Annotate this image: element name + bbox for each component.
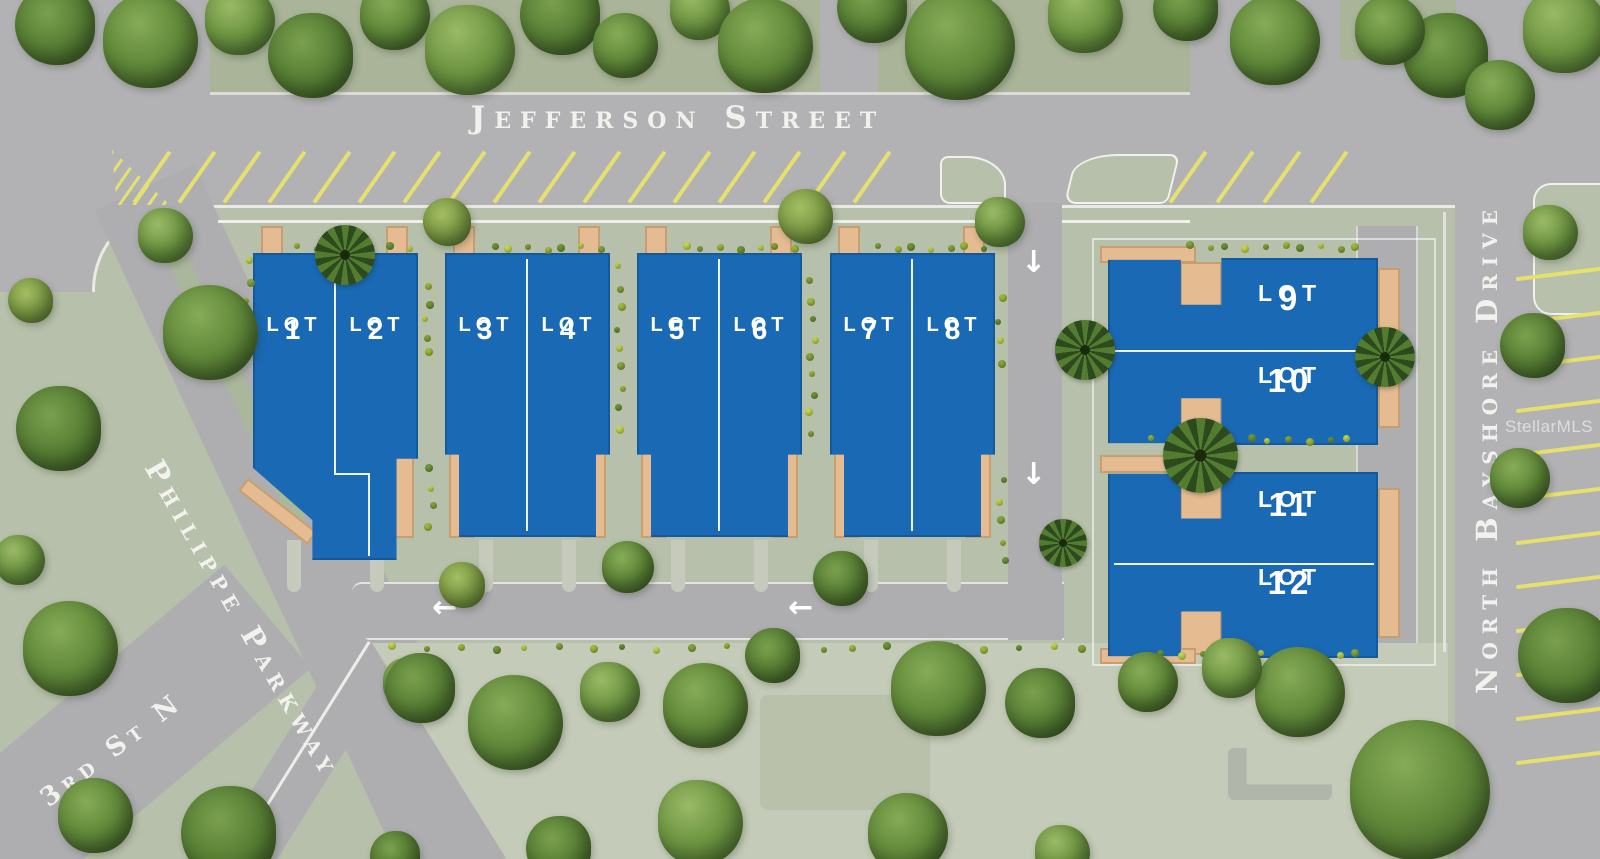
tree-icon: [1523, 205, 1578, 260]
unit-divider: [911, 259, 913, 531]
jefferson-street-label: Jefferson Street: [408, 100, 948, 136]
entry-stub: [838, 226, 860, 256]
parking-stripe-icon: [268, 151, 306, 204]
parking-stripe-icon: [583, 151, 621, 204]
shrub-icon: [246, 257, 253, 264]
tree-icon: [1490, 448, 1550, 508]
shrub-icon: [578, 243, 584, 249]
shrub-icon: [683, 242, 691, 250]
tree-icon: [778, 189, 833, 244]
tree-icon: [813, 551, 868, 606]
shrub-icon: [1186, 241, 1194, 249]
shrub-icon: [425, 464, 433, 472]
shrub-icon: [997, 516, 1005, 524]
shrub-icon: [996, 499, 1003, 506]
tree-icon: [1350, 720, 1490, 859]
shrub-icon: [294, 243, 300, 249]
unit-divider: [334, 259, 336, 473]
shrub-icon: [424, 335, 431, 342]
tree-icon: [1005, 668, 1075, 738]
sidewalk-line: [210, 92, 1190, 95]
shrub-icon: [1221, 243, 1228, 250]
shrub-icon: [1002, 557, 1009, 564]
shrub-icon: [1148, 435, 1154, 441]
unit-divider: [1114, 350, 1374, 352]
shrub-icon: [493, 646, 501, 654]
stellar-mls-watermark: StellarMLS: [1505, 417, 1593, 437]
shrub-icon: [598, 246, 605, 253]
curb-line: [1443, 212, 1446, 652]
unit-divider: [334, 473, 370, 475]
site-plan-map: LOT1 LOT2 LOT3 LOT4 LOT5 LOT6 LOT7 LOT8 …: [0, 0, 1600, 859]
shrub-icon: [1178, 652, 1186, 660]
shrub-icon: [1248, 434, 1256, 442]
tree-icon: [1355, 0, 1425, 65]
sidewalk-line: [218, 220, 1008, 223]
shrub-icon: [247, 279, 255, 287]
shrub-icon: [653, 647, 660, 654]
tree-icon: [8, 278, 53, 323]
shrub-icon: [771, 243, 778, 250]
shrub-icon: [1283, 242, 1290, 249]
shrub-icon: [620, 386, 626, 392]
parking-stripe-icon: [1516, 751, 1600, 765]
tree-icon: [138, 208, 193, 263]
shrub-icon: [556, 643, 563, 650]
shrub-icon: [422, 316, 428, 322]
tree-icon: [1118, 652, 1178, 712]
shrub-icon: [614, 327, 620, 333]
tree-icon: [658, 780, 743, 859]
entry-stub: [261, 226, 283, 256]
unit-divider: [718, 259, 720, 531]
shrub-icon: [615, 263, 621, 269]
shrub-icon: [812, 337, 819, 344]
parking-stripe-icon: [1216, 151, 1254, 204]
entry-stub: [386, 226, 408, 256]
parking-stripe-icon: [1263, 151, 1301, 204]
one-way-arrow-down-icon: ↓: [1021, 248, 1046, 278]
shrub-icon: [928, 247, 934, 253]
shrub-icon: [810, 316, 816, 322]
tree-icon: [425, 5, 515, 95]
entry-stub: [578, 226, 600, 256]
shrub-icon: [999, 294, 1007, 302]
shrub-icon: [998, 360, 1006, 368]
tree-icon: [891, 641, 986, 736]
shrub-icon: [1001, 477, 1007, 483]
tree-icon: [1230, 0, 1320, 85]
shrub-icon: [618, 303, 626, 311]
shrub-icon: [907, 243, 915, 251]
unit-divider: [526, 259, 528, 531]
tree-icon: [593, 13, 658, 78]
parking-stripe-icon: [1516, 575, 1600, 589]
tree-icon: [1518, 608, 1600, 703]
shrub-icon: [525, 244, 531, 250]
shrub-icon: [791, 245, 799, 253]
parking-stripe-icon: [1310, 151, 1348, 204]
shrub-icon: [1351, 243, 1359, 251]
shrub-icon: [809, 371, 815, 377]
tree-icon: [268, 13, 353, 98]
parking-stripe-icon: [673, 151, 711, 204]
tree-icon: [468, 675, 563, 770]
shrub-icon: [1285, 436, 1292, 443]
shrub-icon: [807, 298, 815, 306]
walkway: [1180, 262, 1222, 310]
shrub-icon: [407, 246, 413, 252]
shrub-icon: [424, 646, 430, 652]
shrub-icon: [617, 286, 624, 293]
shrub-icon: [883, 642, 891, 650]
shrub-icon: [615, 404, 622, 411]
tree-icon: [1202, 638, 1262, 698]
shrub-icon: [808, 431, 814, 437]
parking-stripe-icon: [493, 151, 531, 204]
shrub-icon: [806, 353, 814, 361]
tree-icon: [1465, 60, 1535, 130]
shrub-icon: [616, 426, 624, 434]
unit-divider: [1114, 563, 1374, 565]
shrub-icon: [388, 642, 396, 650]
shrub-icon: [386, 242, 394, 250]
sidewalk-line: [1062, 220, 1190, 223]
parking-stripe-icon: [628, 151, 666, 204]
shrub-icon: [458, 644, 465, 651]
shrub-icon: [425, 348, 433, 356]
walk-stub: [287, 540, 301, 592]
north-bayshore-drive-label: North Bayshore Drive: [1470, 128, 1504, 768]
shrub-icon: [492, 243, 499, 250]
shrub-icon: [1263, 244, 1269, 250]
shrub-icon: [430, 502, 437, 509]
shrub-icon: [1351, 649, 1359, 657]
shrub-icon: [1296, 244, 1304, 252]
shrub-icon: [997, 337, 1004, 344]
shrub-icon: [849, 645, 856, 652]
tree-icon: [663, 663, 748, 748]
shrub-icon: [1264, 438, 1270, 444]
shrub-icon: [895, 246, 902, 253]
parking-stripe-icon: [1516, 399, 1600, 413]
parking-stripe-icon: [853, 151, 891, 204]
shrub-icon: [1078, 645, 1086, 653]
parking-stripe-icon: [1516, 707, 1600, 721]
palm-tree-icon: [315, 225, 375, 285]
palm-tree-icon: [1055, 320, 1115, 380]
parking-stripe-icon: [718, 151, 756, 204]
shrub-icon: [737, 246, 745, 254]
tree-icon: [745, 628, 800, 683]
shrub-icon: [557, 244, 565, 252]
building-lots-11-12: [1108, 472, 1378, 658]
shrub-icon: [811, 392, 818, 399]
shrub-icon: [1337, 652, 1344, 659]
shrub-icon: [1000, 540, 1006, 546]
tree-icon: [58, 778, 133, 853]
parking-stripe-icon: [448, 151, 486, 204]
shrub-icon: [616, 345, 623, 352]
unit-divider: [368, 473, 370, 556]
palm-tree-icon: [1039, 519, 1087, 567]
parking-stripe-icon: [1516, 531, 1600, 545]
tree-icon: [1500, 313, 1565, 378]
shrub-icon: [426, 301, 434, 309]
shrub-icon: [806, 277, 813, 284]
shrub-icon: [875, 243, 881, 249]
shrub-icon: [717, 244, 724, 251]
tree-icon: [423, 198, 471, 246]
shrub-icon: [981, 246, 987, 252]
parking-stripe-icon: [223, 151, 261, 204]
shrub-icon: [424, 523, 432, 531]
walk-stub: [754, 540, 768, 592]
shrub-icon: [688, 644, 696, 652]
shrub-icon: [995, 319, 1001, 325]
parking-stripe-icon: [358, 151, 396, 204]
one-way-arrow-down-icon: ↓: [1021, 460, 1046, 490]
shrub-icon: [425, 283, 432, 290]
entry-stub: [645, 226, 667, 256]
tree-icon: [385, 653, 455, 723]
tree-icon: [16, 386, 101, 471]
shrub-icon: [1051, 643, 1058, 650]
shrub-icon: [1306, 438, 1314, 446]
tree-icon: [163, 285, 258, 380]
tree-icon: [103, 0, 198, 88]
tree-icon: [23, 601, 118, 696]
walk-stub: [947, 540, 961, 592]
traffic-island: [1064, 154, 1180, 204]
tree-icon: [1255, 647, 1345, 737]
shrub-icon: [1318, 243, 1324, 249]
shrub-icon: [1241, 245, 1249, 253]
shrub-icon: [724, 643, 730, 649]
shrub-icon: [960, 242, 968, 250]
walk-stub: [671, 540, 685, 592]
tree-icon: [580, 662, 640, 722]
walk-stub: [562, 540, 576, 592]
shrub-icon: [617, 362, 625, 370]
shrub-icon: [619, 644, 625, 650]
parking-stripe-icon: [538, 151, 576, 204]
tree-icon: [718, 0, 813, 93]
parking-stripe-icon: [313, 151, 351, 204]
tree-icon: [975, 197, 1025, 247]
parking-stripe-icon: [403, 151, 441, 204]
shrub-icon: [1338, 246, 1345, 253]
shrub-icon: [1343, 435, 1350, 442]
palm-tree-icon: [1163, 418, 1238, 493]
shrub-icon: [1208, 245, 1214, 251]
one-way-arrow-left-icon: ←: [788, 593, 813, 623]
walkway: [1378, 488, 1400, 638]
shrub-icon: [948, 245, 955, 252]
tree-icon: [15, 0, 95, 65]
tree-icon: [439, 562, 485, 608]
palm-tree-icon: [1355, 327, 1415, 387]
shrub-icon: [545, 247, 552, 254]
tree-icon: [1523, 0, 1600, 73]
shrub-icon: [504, 245, 512, 253]
tree-icon: [602, 541, 654, 593]
